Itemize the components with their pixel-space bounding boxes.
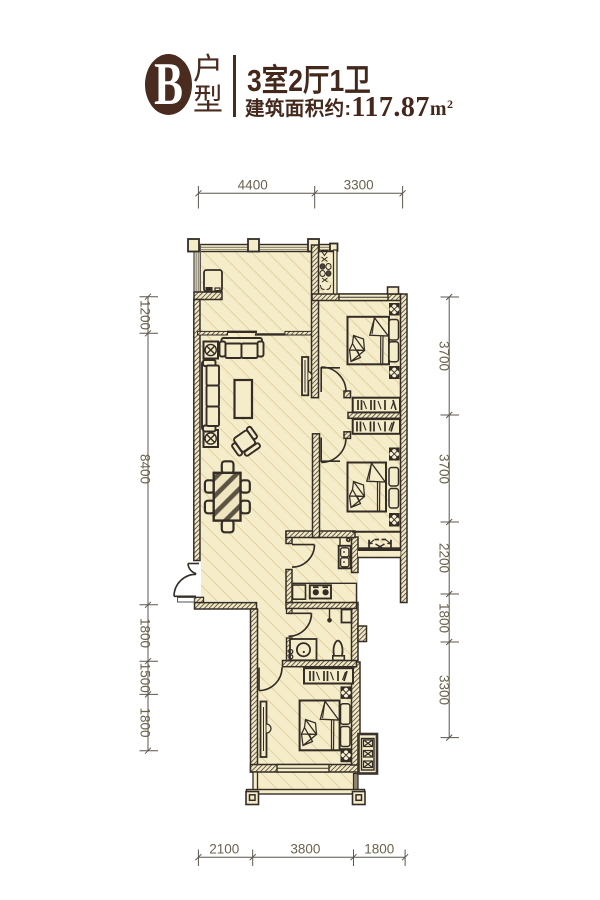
svg-text:1800: 1800	[138, 618, 153, 648]
svg-text:2100: 2100	[209, 842, 239, 857]
svg-text:3300: 3300	[437, 675, 452, 705]
svg-text:8400: 8400	[138, 454, 153, 484]
svg-text:3800: 3800	[290, 842, 320, 857]
svg-text:4400: 4400	[238, 178, 268, 193]
svg-text:2200: 2200	[437, 543, 452, 573]
svg-text:1800: 1800	[437, 603, 452, 633]
svg-text:3700: 3700	[437, 341, 452, 371]
svg-text:1800: 1800	[138, 707, 153, 737]
svg-text:1200: 1200	[138, 300, 153, 330]
svg-text:1800: 1800	[364, 842, 394, 857]
svg-text:3700: 3700	[437, 454, 452, 484]
svg-text:3300: 3300	[344, 178, 374, 193]
svg-text:1500: 1500	[138, 663, 153, 693]
